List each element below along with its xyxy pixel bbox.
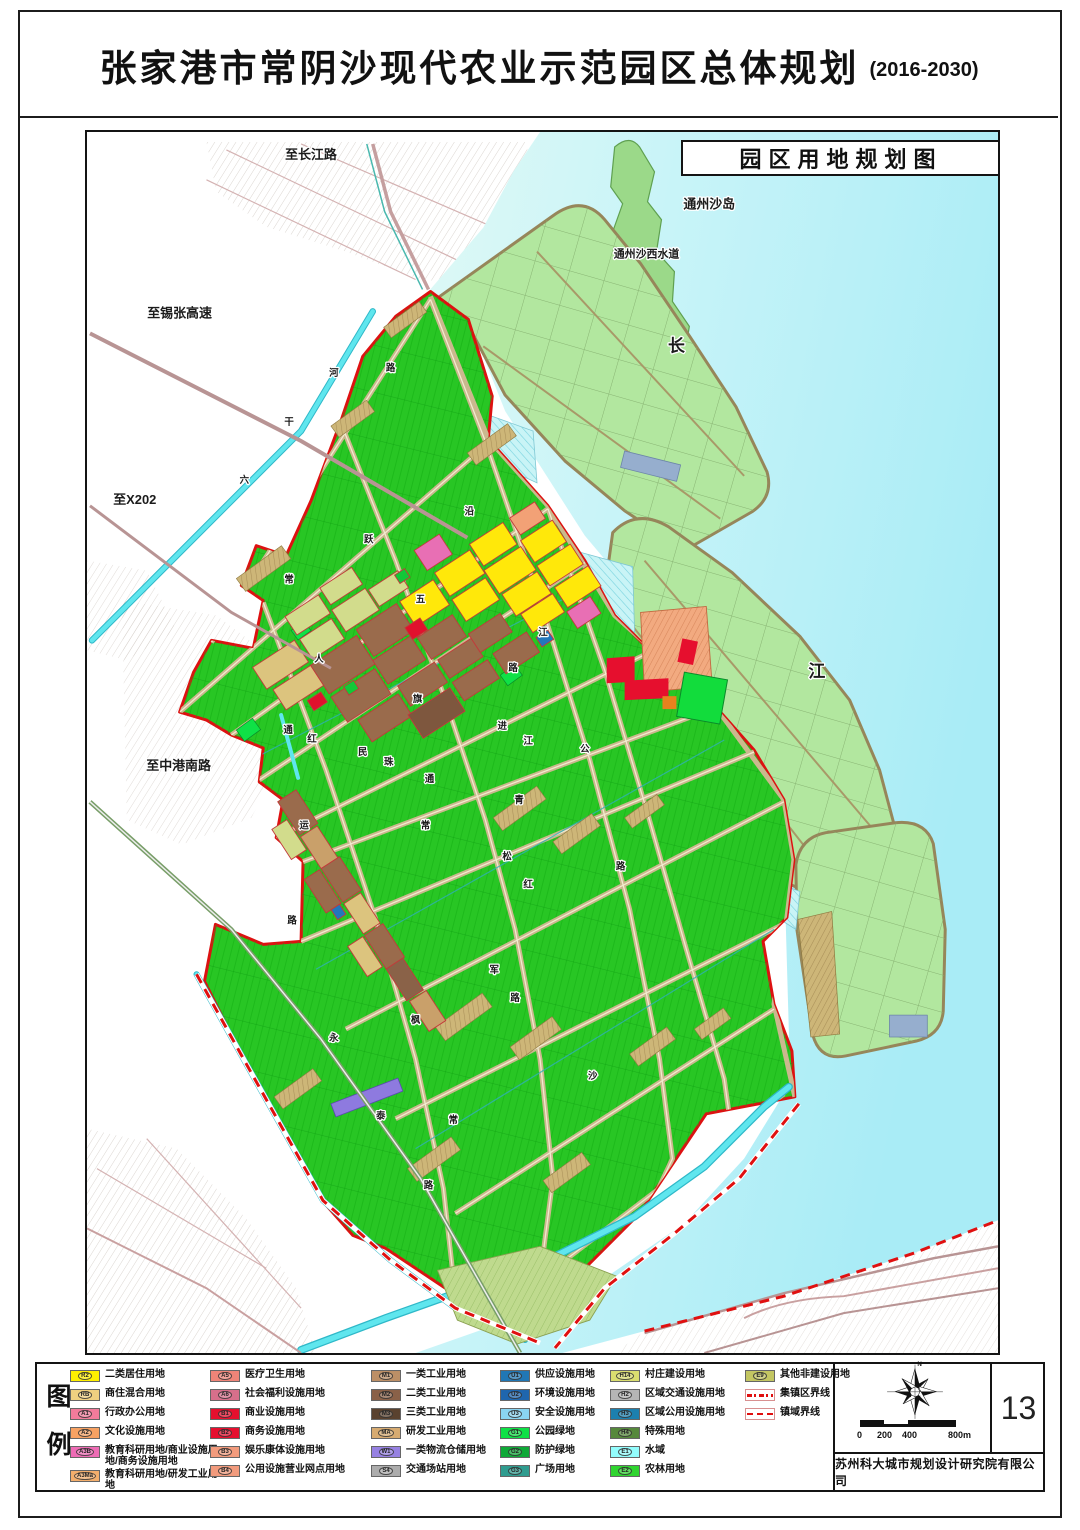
- legend-code: G1: [508, 1429, 522, 1437]
- legend-item-label: 研发工业用地: [406, 1426, 466, 1437]
- legend-item-label: 行政办公用地: [105, 1407, 165, 1418]
- legend-item: A3Ma教育科研用地/研发工业用地: [70, 1469, 225, 1491]
- legend-item-label: 一类工业用地: [406, 1369, 466, 1380]
- legend-item-label: 防护绿地: [535, 1445, 575, 1456]
- map-label: 通: [283, 724, 293, 736]
- scale-label: 800m: [948, 1430, 971, 1440]
- map-label: 江: [538, 626, 548, 638]
- legend-item: G2防护绿地: [500, 1445, 595, 1462]
- legend-swatch: E9: [745, 1370, 775, 1382]
- legend-item-label: 二类工业用地: [406, 1388, 466, 1399]
- legend-code: RB: [78, 1391, 93, 1399]
- scale-bar: 0200400800m: [860, 1420, 980, 1444]
- map-label: 公: [580, 744, 590, 755]
- map-label: 常: [421, 820, 430, 832]
- legend-swatch: M2: [371, 1389, 401, 1401]
- map-label: 民: [358, 747, 367, 758]
- map-label: 青: [514, 794, 524, 806]
- map-label: 五: [416, 594, 426, 605]
- legend-swatch: A1: [70, 1408, 100, 1420]
- map-label: 常: [284, 574, 293, 586]
- map-label: 至锡张高速: [147, 305, 212, 320]
- map-label: 松: [502, 851, 512, 863]
- legend-item-label: 教育科研用地/商业设施用地/商务设施用地: [105, 1445, 225, 1467]
- legend-swatch: H4: [610, 1427, 640, 1439]
- map-label: 军: [489, 965, 498, 976]
- legend-item: H14村庄建设用地: [610, 1369, 725, 1386]
- legend-swatch: [745, 1408, 775, 1420]
- legend-item: G1公园绿地: [500, 1426, 595, 1443]
- legend-swatch: S4: [371, 1465, 401, 1477]
- legend-item-label: 水域: [645, 1445, 665, 1456]
- legend-item-label: 三类工业用地: [406, 1407, 466, 1418]
- legend-code: H2: [618, 1391, 632, 1399]
- legend-code: G2: [508, 1448, 522, 1456]
- legend-swatch: W1: [371, 1446, 401, 1458]
- map-label: 常: [449, 1114, 458, 1126]
- legend-swatch: B4: [210, 1465, 240, 1477]
- legend-item-label: 二类居住用地: [105, 1369, 165, 1380]
- legend-item: A5医疗卫生用地: [210, 1369, 345, 1386]
- legend-item-label: 安全设施用地: [535, 1407, 595, 1418]
- legend-item-label: 教育科研用地/研发工业用地: [105, 1469, 225, 1491]
- map-label: 通州沙岛: [683, 197, 735, 212]
- legend-swatch: H3: [610, 1408, 640, 1420]
- map-label: 至中港南路: [146, 758, 212, 773]
- map-label: 沙: [588, 1071, 598, 1082]
- legend-swatch: A6: [210, 1389, 240, 1401]
- legend-code: E9: [753, 1372, 766, 1380]
- legend-code: H4: [618, 1429, 632, 1437]
- map-label: 红: [307, 733, 317, 745]
- legend-code: S4: [379, 1467, 392, 1475]
- legend-code: A5: [218, 1372, 232, 1380]
- map-label: 路: [424, 1180, 434, 1192]
- legend-code: A2: [78, 1429, 92, 1437]
- map-label: 通: [425, 773, 435, 785]
- legend-swatch: A3Ma: [70, 1470, 100, 1482]
- legend-item-label: 公用设施营业网点用地: [245, 1464, 345, 1475]
- legend-swatch: [745, 1389, 775, 1401]
- map-label: 泰: [375, 1110, 386, 1122]
- document-header: 张家港市常阴沙现代农业示范园区总体规划 (2016-2030): [20, 14, 1058, 118]
- north-label: N: [917, 1361, 922, 1368]
- page-title: 张家港市常阴沙现代农业示范园区总体规划: [100, 38, 860, 92]
- map-label: 运: [299, 821, 309, 832]
- legend-code: M1: [379, 1372, 393, 1380]
- legend-code: A6: [218, 1391, 232, 1399]
- scale-label: 200: [877, 1430, 892, 1440]
- map-label: 江: [808, 662, 825, 681]
- map-label: 沿: [465, 506, 475, 518]
- legend-swatch: R2: [70, 1370, 100, 1382]
- map-label: 路: [510, 992, 520, 1004]
- legend-item-label: 集镇区界线: [780, 1388, 830, 1399]
- legend-item-label: 公园绿地: [535, 1426, 575, 1437]
- legend-swatch: G1: [500, 1427, 530, 1439]
- legend-swatch: H2: [610, 1389, 640, 1401]
- legend-item: U1供应设施用地: [500, 1369, 595, 1386]
- legend-item-label: 商务设施用地: [245, 1426, 305, 1437]
- legend-item: A1行政办公用地: [70, 1407, 225, 1424]
- legend-item-label: 村庄建设用地: [645, 1369, 705, 1380]
- map-label: 永: [328, 1032, 339, 1044]
- legend-column: R2二类居住用地RB商住混合用地A1行政办公用地A2文化设施用地A3B教育科研用…: [70, 1369, 225, 1491]
- legend-item-label: 一类物流仓储用地: [406, 1445, 486, 1456]
- company-name: 苏州科大城市规划设计研究院有限公司: [833, 1452, 1043, 1490]
- legend-column: U1供应设施用地U2环境设施用地U3安全设施用地G1公园绿地G2防护绿地G3广场…: [500, 1369, 595, 1481]
- legend-item: B1商业设施用地: [210, 1407, 345, 1424]
- legend-item: A2文化设施用地: [70, 1426, 225, 1443]
- legend-swatch: E2: [610, 1465, 640, 1477]
- legend-code: B1: [218, 1410, 232, 1418]
- legend-item-label: 商业设施用地: [245, 1407, 305, 1418]
- legend-code: M3: [379, 1410, 393, 1418]
- legend-swatch: A2: [70, 1427, 100, 1439]
- map-label: 江: [523, 735, 533, 747]
- legend-swatch: E1: [610, 1446, 640, 1458]
- legend-swatch: RB: [70, 1389, 100, 1401]
- legend-item: H4特殊用地: [610, 1426, 725, 1443]
- legend-item: W1一类物流仓储用地: [371, 1445, 486, 1462]
- legend-code: E2: [618, 1467, 631, 1475]
- legend-band: 图例 R2二类居住用地RB商住混合用地A1行政办公用地A2文化设施用地A3B教育…: [35, 1362, 1045, 1492]
- legend-code: A3Ma: [74, 1472, 96, 1480]
- page-title-year: (2016-2030): [870, 49, 979, 82]
- legend-item-label: 镇域界线: [780, 1407, 820, 1418]
- legend-item-label: 供应设施用地: [535, 1369, 595, 1380]
- legend-code: G3: [508, 1467, 522, 1475]
- legend-item-label: 广场用地: [535, 1464, 575, 1475]
- map-label: 长: [668, 335, 685, 355]
- legend-item: S4交通场站用地: [371, 1464, 486, 1481]
- legend-swatch: G2: [500, 1446, 530, 1458]
- legend-swatch: H14: [610, 1370, 640, 1382]
- legend-code: U2: [508, 1391, 522, 1399]
- legend-code: MA: [378, 1429, 393, 1437]
- legend-item: RB商住混合用地: [70, 1388, 225, 1405]
- legend-column: H14村庄建设用地H2区域交通设施用地H3区域公用设施用地H4特殊用地E1水域E…: [610, 1369, 725, 1481]
- legend-column: M1一类工业用地M2二类工业用地M3三类工业用地MA研发工业用地W1一类物流仓储…: [371, 1369, 486, 1481]
- scale-label: 400: [902, 1430, 917, 1440]
- legend-item: R2二类居住用地: [70, 1369, 225, 1386]
- map-title-box: 园区用地规划图: [681, 140, 1000, 176]
- legend-item: B3娱乐康体设施用地: [210, 1445, 345, 1462]
- legend-item-label: 环境设施用地: [535, 1388, 595, 1399]
- map-label: 路: [508, 662, 518, 674]
- legend-code: A1: [78, 1410, 92, 1418]
- legend-swatch: M1: [371, 1370, 401, 1382]
- legend-swatch: A5: [210, 1370, 240, 1382]
- legend-item: A6社会福利设施用地: [210, 1388, 345, 1405]
- map-label: 干: [284, 417, 294, 428]
- legend-item: B4公用设施营业网点用地: [210, 1464, 345, 1481]
- legend-item: A3B教育科研用地/商业设施用地/商务设施用地: [70, 1445, 225, 1467]
- legend-swatch: B1: [210, 1408, 240, 1420]
- legend-item-label: 医疗卫生用地: [245, 1369, 305, 1380]
- legend-item-label: 商住混合用地: [105, 1388, 165, 1399]
- legend-item-label: 交通场站用地: [406, 1464, 466, 1475]
- compass-cell: N 0200400800m: [833, 1364, 992, 1452]
- legend-swatch: A3B: [70, 1446, 100, 1458]
- map-label: 六: [240, 474, 250, 486]
- legend-item-label: 区域公用设施用地: [645, 1407, 725, 1418]
- legend-item: B2商务设施用地: [210, 1426, 345, 1443]
- legend-item-label: 社会福利设施用地: [245, 1388, 325, 1399]
- map-label: 河: [329, 367, 339, 379]
- map-label: 路: [616, 861, 626, 873]
- legend-item-label: 文化设施用地: [105, 1426, 165, 1437]
- legend-item: H3区域公用设施用地: [610, 1407, 725, 1424]
- map-label: 路: [287, 914, 297, 926]
- legend-swatch: M3: [371, 1408, 401, 1420]
- map-label: 人: [314, 653, 324, 665]
- legend-item: M3三类工业用地: [371, 1407, 486, 1424]
- legend-swatch: B3: [210, 1446, 240, 1458]
- legend-item: M1一类工业用地: [371, 1369, 486, 1386]
- legend-code: W1: [379, 1448, 394, 1456]
- legend-item: G3广场用地: [500, 1464, 595, 1481]
- planning-document-page: { "page": { "title": "张家港市常阴沙现代农业示范园区总体规…: [0, 0, 1080, 1530]
- map-label: 枫: [411, 1014, 421, 1026]
- map-label: 跃: [364, 534, 374, 546]
- legend-item: M2二类工业用地: [371, 1388, 486, 1405]
- legend-code: B3: [218, 1448, 232, 1456]
- legend-swatch: U2: [500, 1389, 530, 1401]
- legend-code: B2: [218, 1429, 232, 1437]
- legend-swatch: B2: [210, 1427, 240, 1439]
- legend-code: A3B: [76, 1448, 94, 1456]
- legend-column: A5医疗卫生用地A6社会福利设施用地B1商业设施用地B2商务设施用地B3娱乐康体…: [210, 1369, 345, 1481]
- legend-code: B4: [218, 1467, 232, 1475]
- legend-swatch: U1: [500, 1370, 530, 1382]
- map-label: 至长江路: [285, 147, 338, 162]
- legend-item-label: 农林用地: [645, 1464, 685, 1475]
- legend-code: H3: [618, 1410, 632, 1418]
- map-label: 珠: [384, 756, 394, 768]
- legend-code: U3: [508, 1410, 522, 1418]
- legend-item: U3安全设施用地: [500, 1407, 595, 1424]
- scale-label: 0: [857, 1430, 862, 1440]
- map-label: 旗: [413, 693, 423, 705]
- legend-heading: 图例: [45, 1374, 73, 1469]
- legend-item: MA研发工业用地: [371, 1426, 486, 1443]
- map-label: 至X202: [113, 492, 156, 507]
- legend-item-label: 区域交通设施用地: [645, 1388, 725, 1399]
- legend-item: H2区域交通设施用地: [610, 1388, 725, 1405]
- page-number: 13: [990, 1364, 1045, 1452]
- land-use-map-panel: 园区用地规划图: [85, 130, 1000, 1355]
- legend-item: U2环境设施用地: [500, 1388, 595, 1405]
- legend-code: M2: [379, 1391, 393, 1399]
- legend-item-label: 娱乐康体设施用地: [245, 1445, 325, 1456]
- legend-code: R2: [78, 1372, 92, 1380]
- legend-item: E1水域: [610, 1445, 725, 1462]
- legend-swatch: MA: [371, 1427, 401, 1439]
- legend-code: E1: [618, 1448, 631, 1456]
- legend-item: E2农林用地: [610, 1464, 725, 1481]
- map-label: 通州沙西水道: [614, 247, 680, 261]
- map-label: 进: [497, 720, 507, 732]
- legend-code: U1: [508, 1372, 522, 1380]
- legend-swatch: U3: [500, 1408, 530, 1420]
- land-use-map-canvas: 至长江路至锡张高速至X202至中港南路通州沙岛通州沙西水道长江六干河路跃常五沿江…: [87, 132, 998, 1353]
- legend-item-label: 特殊用地: [645, 1426, 685, 1437]
- legend-swatch: G3: [500, 1465, 530, 1477]
- map-label: 红: [523, 879, 533, 891]
- map-label: 路: [386, 362, 396, 374]
- legend-code: H14: [616, 1372, 633, 1380]
- compass-rose-icon: N: [883, 1360, 947, 1422]
